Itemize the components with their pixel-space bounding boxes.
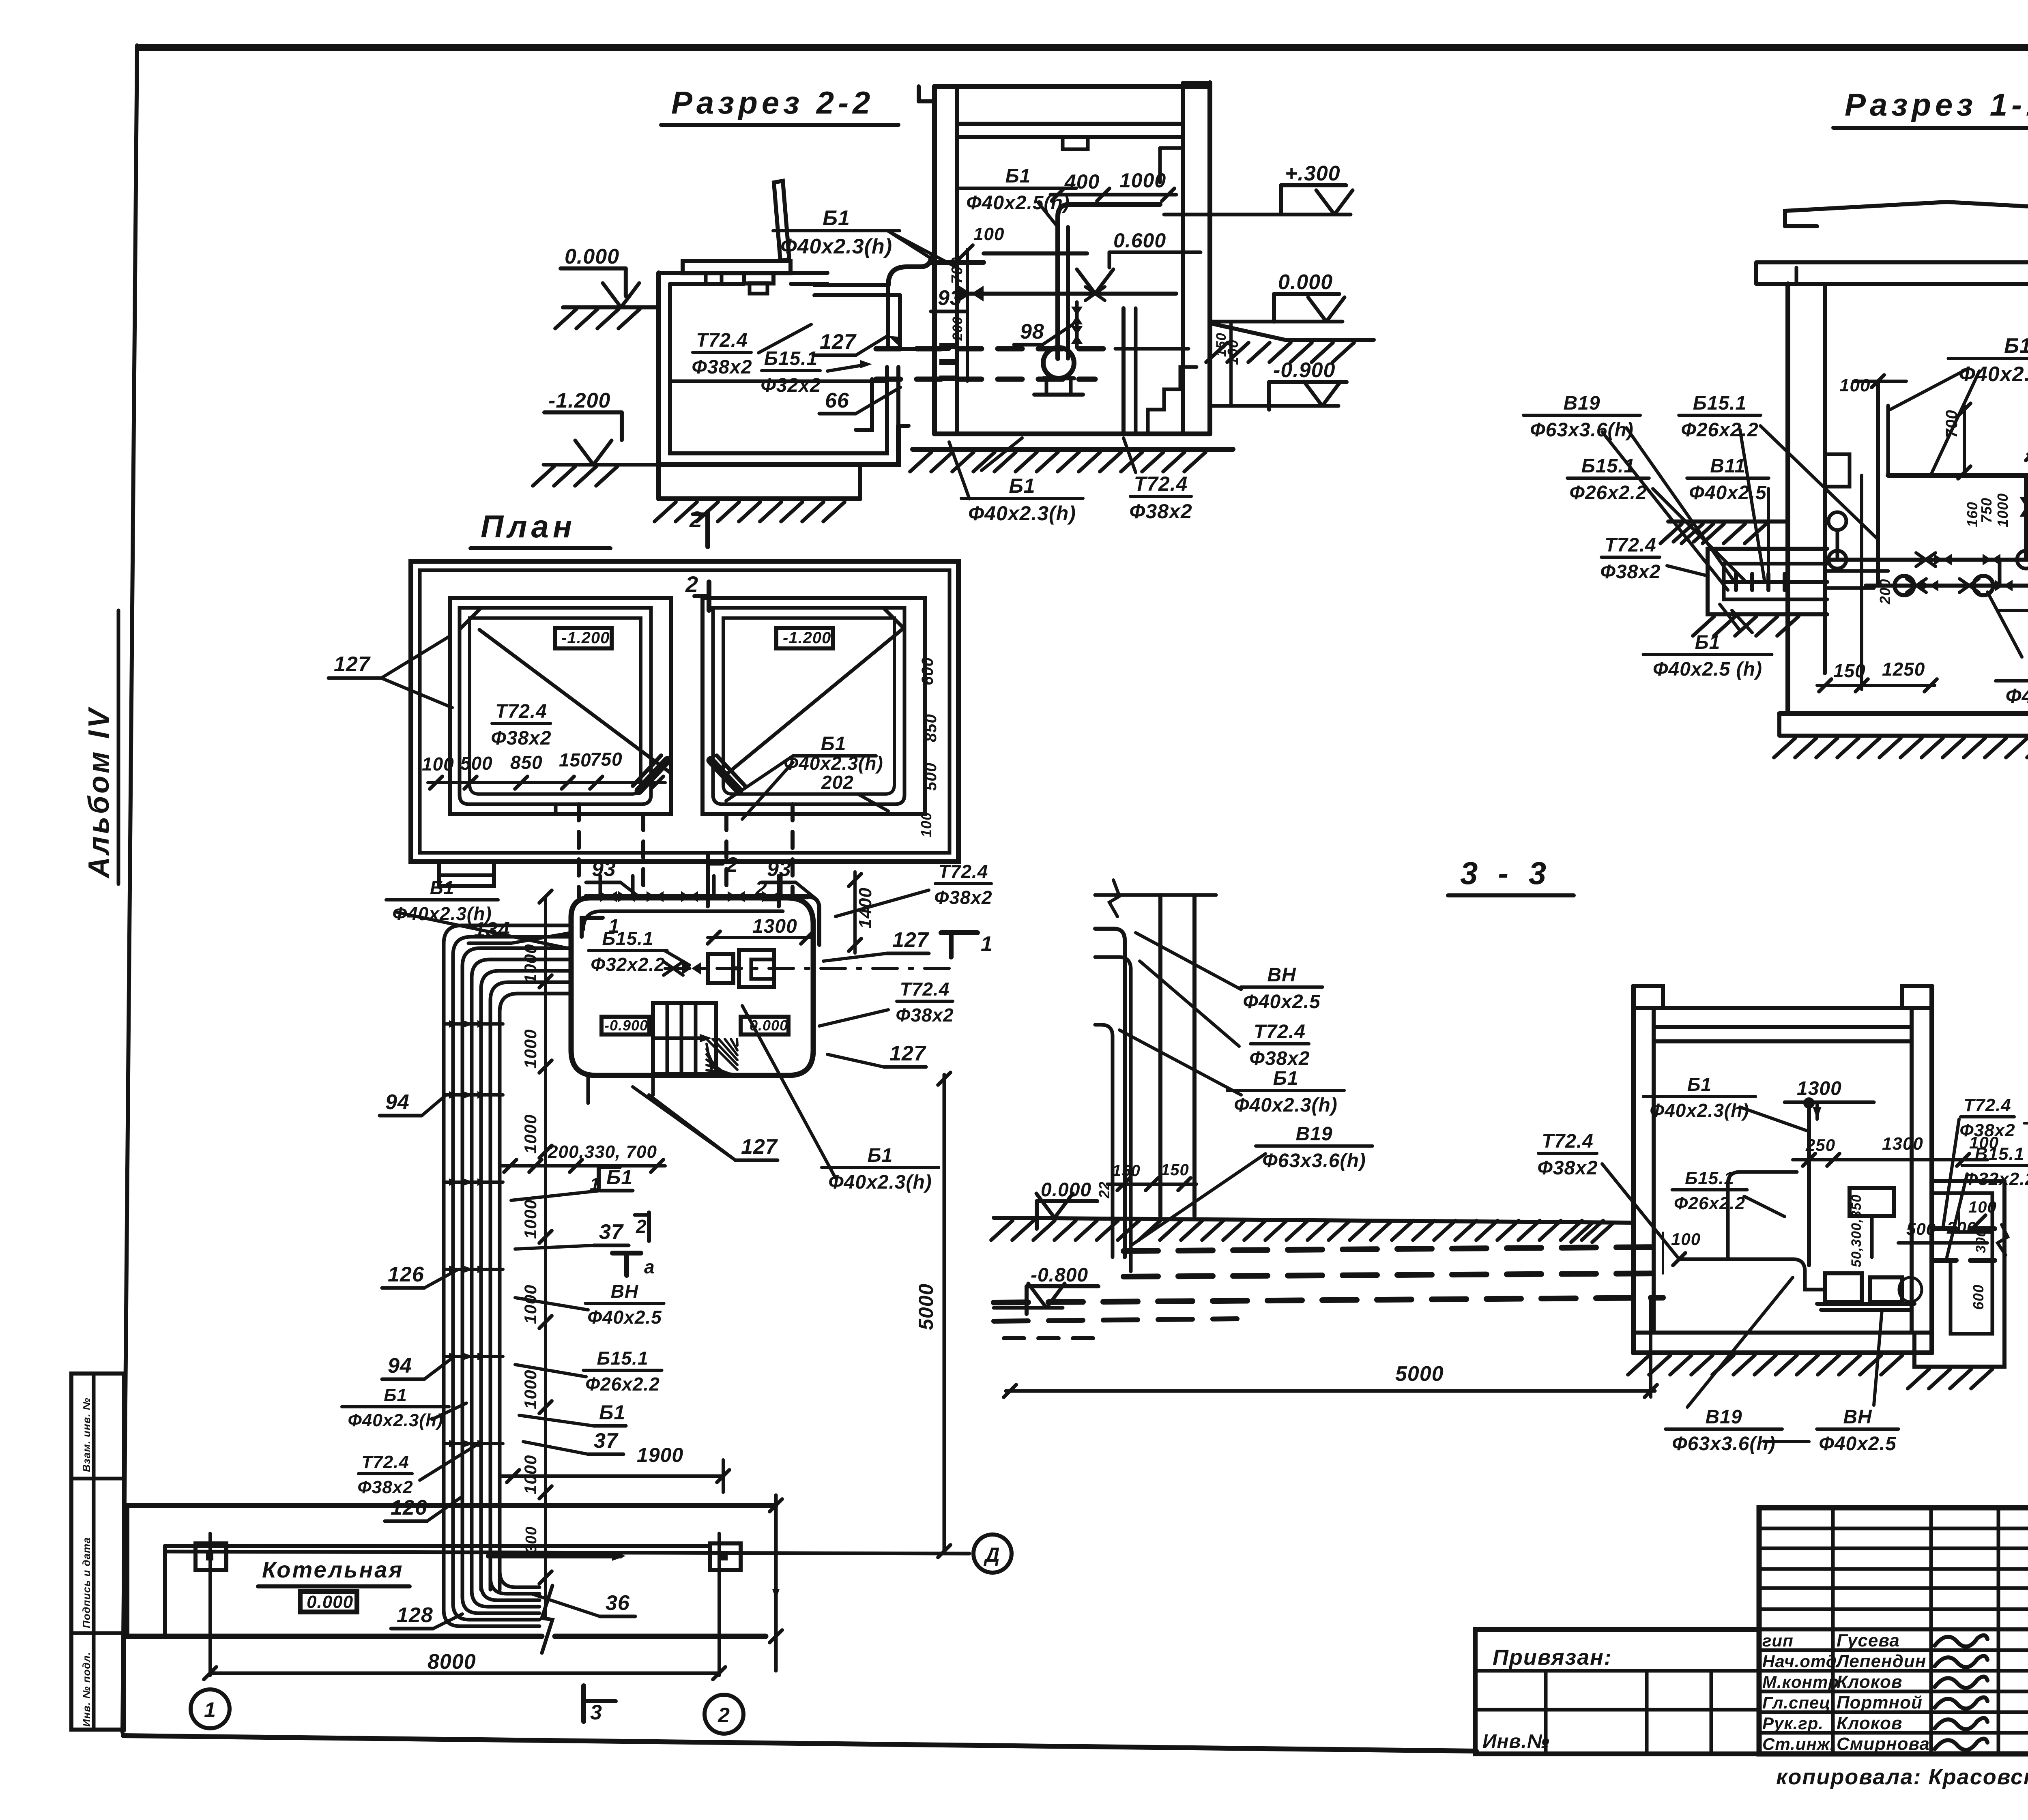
svg-text:750: 750 xyxy=(590,749,623,770)
svg-text:Б1: Б1 xyxy=(2004,334,2028,358)
svg-text:Ф26х2.2: Ф26х2.2 xyxy=(1569,482,1647,504)
svg-text:Т72.4: Т72.4 xyxy=(1542,1131,1594,1152)
svg-text:Нач.отд: Нач.отд xyxy=(1762,1652,1837,1671)
svg-text:37: 37 xyxy=(594,1429,619,1453)
svg-text:2: 2 xyxy=(685,571,698,597)
svg-text:Б1: Б1 xyxy=(823,206,850,230)
svg-text:ВН: ВН xyxy=(611,1281,638,1302)
svg-text:Т72.4: Т72.4 xyxy=(900,979,950,1000)
svg-text:Б15.1: Б15.1 xyxy=(764,348,818,369)
svg-text:ВН: ВН xyxy=(1267,964,1296,986)
svg-text:Портной: Портной xyxy=(1837,1693,1923,1713)
svg-text:Лепендин: Лепендин xyxy=(1835,1651,1926,1671)
svg-text:Ф38х2: Ф38х2 xyxy=(934,887,992,908)
svg-text:Б15.1: Б15.1 xyxy=(597,1348,648,1369)
svg-text:Б1: Б1 xyxy=(606,1166,633,1189)
svg-text:1000: 1000 xyxy=(521,944,540,983)
svg-text:Т72.4: Т72.4 xyxy=(1605,534,1656,556)
svg-text:Б1: Б1 xyxy=(1695,632,1721,653)
svg-text:В19: В19 xyxy=(1563,393,1600,414)
svg-text:Ф38х2: Ф38х2 xyxy=(1600,561,1661,583)
svg-text:200: 200 xyxy=(1877,579,1893,605)
svg-text:Ф40х2.3(h): Ф40х2.3(h) xyxy=(828,1172,932,1193)
svg-text:Ф40х2.5: Ф40х2.5 xyxy=(1243,991,1321,1013)
svg-text:1000: 1000 xyxy=(1119,169,1166,192)
svg-text:Т72.4: Т72.4 xyxy=(1134,472,1188,495)
svg-text:98: 98 xyxy=(1020,320,1044,343)
svg-text:-1.200: -1.200 xyxy=(548,389,610,412)
svg-text:127: 127 xyxy=(889,1042,926,1065)
svg-text:500: 500 xyxy=(460,753,493,774)
svg-text:Т72.4: Т72.4 xyxy=(1254,1021,1306,1043)
svg-text:Смирнова: Смирнова xyxy=(1837,1734,1930,1754)
svg-text:Ф32х2: Ф32х2 xyxy=(760,375,821,396)
svg-text:-1.200: -1.200 xyxy=(561,629,610,647)
svg-text:127: 127 xyxy=(820,330,857,354)
svg-text:Ф38х2: Ф38х2 xyxy=(1959,1120,2015,1140)
svg-text:Т72.4: Т72.4 xyxy=(495,701,547,722)
svg-text:Б1: Б1 xyxy=(430,877,454,898)
svg-text:Ф40х2.3 (h): Ф40х2.3 (h) xyxy=(1959,363,2028,386)
svg-text:Ф38х2: Ф38х2 xyxy=(896,1004,954,1026)
svg-text:Ф38х2: Ф38х2 xyxy=(1249,1048,1310,1069)
svg-text:Инв.№: Инв.№ xyxy=(1482,1731,1550,1752)
svg-text:600: 600 xyxy=(919,657,937,685)
svg-text:300: 300 xyxy=(523,1526,540,1553)
svg-text:66: 66 xyxy=(825,389,849,412)
svg-text:1300: 1300 xyxy=(1797,1078,1842,1099)
svg-text:1300: 1300 xyxy=(752,916,797,937)
svg-text:В19: В19 xyxy=(1705,1406,1742,1428)
svg-text:2: 2 xyxy=(636,1216,647,1237)
svg-text:3 - 3: 3 - 3 xyxy=(1460,855,1552,891)
svg-text:План: План xyxy=(481,509,576,544)
svg-text:100: 100 xyxy=(1839,376,1870,395)
svg-text:22: 22 xyxy=(1096,1181,1113,1199)
svg-text:Ф40х2.3(h): Ф40х2.3(h) xyxy=(1650,1100,1749,1121)
svg-text:3: 3 xyxy=(590,1701,602,1724)
svg-text:Д: Д xyxy=(983,1543,1000,1566)
svg-text:Ф63х3.6(h): Ф63х3.6(h) xyxy=(1530,419,1634,441)
svg-text:Т72.4: Т72.4 xyxy=(1964,1095,2011,1115)
svg-text:2: 2 xyxy=(689,507,702,532)
svg-text:М.контр: М.контр xyxy=(1762,1672,1839,1691)
svg-text:1900: 1900 xyxy=(637,1444,683,1466)
svg-text:Ф26х2.2: Ф26х2.2 xyxy=(1674,1193,1745,1213)
svg-text:1000: 1000 xyxy=(521,1285,540,1324)
svg-text:Ст.инж.: Ст.инж. xyxy=(1762,1734,1835,1753)
svg-text:202: 202 xyxy=(821,772,854,793)
svg-text:Ф40х2.3 (h): Ф40х2.3 (h) xyxy=(2006,685,2028,707)
svg-text:600: 600 xyxy=(1970,1284,1987,1310)
svg-text:700: 700 xyxy=(949,257,966,284)
svg-text:Ф40х2.3(h): Ф40х2.3(h) xyxy=(784,753,883,774)
svg-text:ВН: ВН xyxy=(1843,1406,1872,1428)
svg-text:1: 1 xyxy=(204,1698,216,1722)
svg-text:150: 150 xyxy=(1112,1162,1141,1180)
svg-text:Ф38х2: Ф38х2 xyxy=(491,728,551,749)
svg-text:копировала: Красовская: копировала: Красовская xyxy=(1776,1765,2028,1789)
svg-text:Котельная: Котельная xyxy=(262,1557,404,1582)
svg-text:Б1: Б1 xyxy=(1273,1068,1299,1089)
svg-text:Ф26х2.2: Ф26х2.2 xyxy=(585,1374,660,1395)
svg-text:Б15.1: Б15.1 xyxy=(1581,455,1635,477)
svg-text:Ф63х3.6(h): Ф63х3.6(h) xyxy=(1672,1433,1776,1455)
svg-text:Б15.1: Б15.1 xyxy=(602,928,653,949)
svg-text:Взам. инв. №: Взам. инв. № xyxy=(80,1397,92,1472)
svg-text:-0.900: -0.900 xyxy=(604,1017,648,1034)
svg-text:300: 300 xyxy=(1973,1229,1989,1253)
svg-text:Клоков: Клоков xyxy=(1837,1713,1902,1733)
svg-text:1: 1 xyxy=(981,932,993,956)
svg-text:0.600: 0.600 xyxy=(1113,229,1166,252)
svg-text:500: 500 xyxy=(922,762,940,791)
svg-text:94: 94 xyxy=(388,1354,412,1378)
svg-text:100: 100 xyxy=(973,224,1004,244)
svg-text:Гл.спец: Гл.спец xyxy=(1762,1693,1830,1712)
svg-text:Б15.1: Б15.1 xyxy=(1693,393,1747,414)
svg-text:Разрез 2-2: Разрез 2-2 xyxy=(671,85,874,120)
svg-text:400: 400 xyxy=(1064,170,1100,193)
svg-text:Ф38х2: Ф38х2 xyxy=(357,1477,413,1497)
svg-text:Б1: Б1 xyxy=(599,1401,625,1424)
svg-text:150: 150 xyxy=(1214,333,1229,357)
svg-text:2: 2 xyxy=(726,853,738,877)
svg-text:Ф26х2.2: Ф26х2.2 xyxy=(1681,419,1758,441)
svg-text:Б15.1: Б15.1 xyxy=(1685,1168,1734,1188)
svg-text:Ф40х2.5 (h): Ф40х2.5 (h) xyxy=(1653,659,1762,680)
svg-text:Б1: Б1 xyxy=(1009,474,1035,497)
svg-text:0.000: 0.000 xyxy=(307,1592,353,1612)
svg-text:1000: 1000 xyxy=(521,1029,540,1069)
svg-text:1250: 1250 xyxy=(1882,659,1925,680)
svg-text:Инв. № подл.: Инв. № подл. xyxy=(80,1652,92,1727)
svg-text:Т72.4: Т72.4 xyxy=(939,861,988,882)
svg-text:Ф38х2: Ф38х2 xyxy=(1537,1157,1598,1179)
svg-text:150: 150 xyxy=(559,749,591,770)
svg-text:Гусева: Гусева xyxy=(1837,1631,1900,1650)
svg-text:5000: 5000 xyxy=(1395,1362,1444,1386)
svg-text:200: 200 xyxy=(950,316,965,341)
svg-text:Ф40х2.5: Ф40х2.5 xyxy=(1819,1433,1897,1455)
svg-text:Ф40х2.3(h): Ф40х2.3(h) xyxy=(348,1410,443,1430)
svg-text:0.000: 0.000 xyxy=(1041,1179,1091,1201)
svg-text:150: 150 xyxy=(1161,1161,1189,1179)
svg-text:Б1: Б1 xyxy=(868,1145,893,1166)
svg-text:Ф40х2.5: Ф40х2.5 xyxy=(1689,482,1767,504)
svg-text:750: 750 xyxy=(1978,498,1995,523)
svg-text:Ф32х2.2: Ф32х2.2 xyxy=(591,954,665,975)
svg-text:200,330, 700: 200,330, 700 xyxy=(548,1142,657,1162)
svg-text:Ф38х2: Ф38х2 xyxy=(1129,500,1192,523)
svg-text:1000: 1000 xyxy=(521,1370,540,1409)
svg-text:-0.900: -0.900 xyxy=(1273,358,1335,382)
svg-text:1000: 1000 xyxy=(521,1114,540,1154)
svg-text:0.000: 0.000 xyxy=(1278,270,1333,294)
svg-text:36: 36 xyxy=(606,1591,630,1615)
svg-text:Б1: Б1 xyxy=(821,733,846,755)
svg-text:Альбом IV: Альбом IV xyxy=(83,706,115,879)
svg-text:250: 250 xyxy=(1805,1135,1835,1155)
svg-text:93: 93 xyxy=(938,286,962,310)
svg-text:Ф38х2: Ф38х2 xyxy=(692,356,752,378)
svg-text:Ф40х2.3(h): Ф40х2.3(h) xyxy=(780,235,892,258)
svg-text:94: 94 xyxy=(385,1090,410,1114)
svg-text:В15.1: В15.1 xyxy=(1975,1144,2024,1164)
svg-text:100: 100 xyxy=(918,812,935,837)
svg-text:0.000: 0.000 xyxy=(565,245,619,268)
svg-text:127: 127 xyxy=(892,928,929,952)
svg-text:Ф63х3.6(h): Ф63х3.6(h) xyxy=(1262,1150,1366,1172)
svg-text:93: 93 xyxy=(592,857,616,881)
svg-text:Клоков: Клоков xyxy=(1837,1672,1902,1692)
svg-text:+.300: +.300 xyxy=(1285,162,1341,185)
svg-text:50,300,350: 50,300,350 xyxy=(1849,1194,1864,1267)
svg-text:Б1: Б1 xyxy=(1687,1074,1712,1095)
svg-text:Рук.гр.: Рук.гр. xyxy=(1762,1714,1824,1733)
svg-text:Разрез 1-1: Разрез 1-1 xyxy=(1845,87,2028,122)
svg-text:а: а xyxy=(644,1256,655,1277)
svg-text:Ф40х2.3(h): Ф40х2.3(h) xyxy=(968,502,1076,525)
svg-text:Б1: Б1 xyxy=(384,1385,407,1405)
svg-text:100: 100 xyxy=(1671,1230,1701,1249)
svg-text:1300: 1300 xyxy=(1882,1134,1923,1154)
svg-text:-0.800: -0.800 xyxy=(1031,1264,1088,1286)
svg-text:2: 2 xyxy=(718,1704,730,1727)
svg-text:128: 128 xyxy=(397,1603,433,1627)
svg-text:5000: 5000 xyxy=(915,1283,937,1330)
svg-text:850: 850 xyxy=(922,714,940,742)
svg-text:126: 126 xyxy=(388,1263,424,1286)
svg-text:Т72.4: Т72.4 xyxy=(361,1452,409,1472)
svg-text:Б1: Б1 xyxy=(1005,165,1031,187)
svg-text:В19: В19 xyxy=(1295,1123,1332,1145)
svg-text:Т72.4: Т72.4 xyxy=(696,330,748,351)
svg-text:100: 100 xyxy=(1968,1198,1997,1216)
svg-text:37: 37 xyxy=(599,1220,624,1244)
svg-text:Ф32х2.2: Ф32х2.2 xyxy=(1964,1169,2028,1189)
svg-text:Ф40х2.3(h): Ф40х2.3(h) xyxy=(1234,1095,1338,1116)
svg-text:127: 127 xyxy=(741,1135,778,1159)
svg-text:Подпись и дата: Подпись и дата xyxy=(80,1537,92,1628)
svg-text:гип: гип xyxy=(1762,1631,1794,1650)
svg-text:-1.200: -1.200 xyxy=(783,629,831,647)
svg-text:Привязан:: Привязан: xyxy=(1493,1645,1612,1670)
svg-text:В11: В11 xyxy=(1710,455,1746,477)
svg-text:100: 100 xyxy=(422,753,454,775)
svg-text:127: 127 xyxy=(334,652,371,676)
svg-text:1000: 1000 xyxy=(521,1200,540,1239)
svg-text:1000: 1000 xyxy=(1994,493,2011,527)
svg-text:Ф40х2.5: Ф40х2.5 xyxy=(587,1307,662,1328)
svg-text:8000: 8000 xyxy=(428,1650,476,1674)
svg-text:850: 850 xyxy=(510,752,543,773)
